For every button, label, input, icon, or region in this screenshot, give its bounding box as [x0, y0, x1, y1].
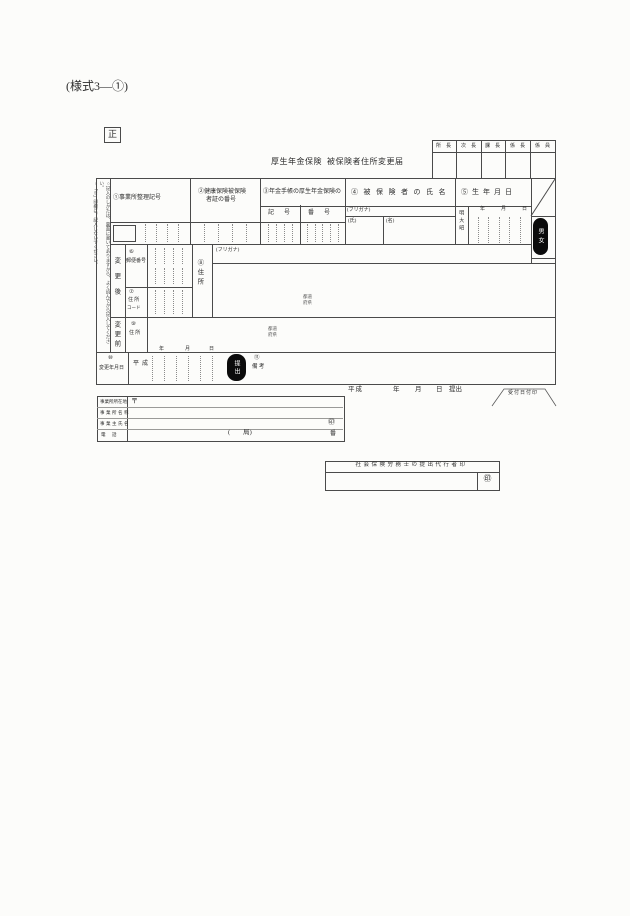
before-pref-note-2: 府県	[268, 333, 277, 338]
employer-phone-label: 電 話	[101, 433, 118, 438]
col-office-code: ①事業所整理記号	[113, 195, 161, 201]
copy-mark-box: 正	[104, 127, 121, 143]
line-art-overlay	[0, 0, 630, 916]
change-date-era: 平成	[133, 361, 151, 367]
after-address-furigana: (フリガナ)	[216, 248, 239, 253]
ocr-marker-submit: 提出	[227, 354, 246, 381]
submit-suffix: 提出	[449, 387, 462, 394]
submit-unit-month: 月	[415, 387, 422, 394]
birth-era-labels: 明大昭	[458, 210, 463, 244]
office-code-cell	[113, 225, 136, 242]
name-furigana-label: (フリガナ)	[347, 208, 370, 213]
col-birth-date: ⑤生年月日	[461, 189, 516, 196]
instruction-line-2: ○「※」印欄は、記入しないでください。	[92, 181, 98, 351]
addr-code-label-1: 住 所	[128, 298, 139, 303]
birth-unit-day: 日	[522, 207, 527, 212]
approval-col-kacho: 課長	[485, 144, 505, 149]
scanned-form-page: (様式3—①) 正 厚生年金保険 被保険者住所変更届 所長 次長 課長 係長 係…	[0, 0, 630, 916]
change-date-unit-year: 年	[159, 347, 164, 352]
approval-col-kakariin: 係員	[535, 144, 555, 149]
after-pref-note-2: 府県	[303, 301, 312, 306]
col-health-cert-2: 者証の番号	[206, 197, 236, 203]
phone-kyoku-hint: ( 局)	[228, 430, 252, 437]
approval-col-jicho: 次長	[461, 144, 481, 149]
phone-suffix: 番	[330, 431, 336, 437]
approval-col-kakaricho: 係長	[510, 144, 530, 149]
ocr-marker-gender: 男女	[533, 218, 548, 255]
submit-unit-day: 日	[436, 387, 443, 394]
col-pension-bango: 番 号	[308, 210, 332, 216]
employer-address-label: 事業所所在地	[100, 400, 127, 405]
postal-code-label: 郵便番号	[126, 259, 146, 264]
submit-era: 平成	[348, 387, 363, 394]
col-insured-name: ④被保険者の氏名	[351, 189, 451, 196]
employer-owner-label: 事業主氏名	[100, 422, 130, 427]
addr-code-label-2: コード	[127, 306, 141, 311]
name-last-label: (氏)	[348, 219, 356, 224]
col-pension-book: ③年金手帳の厚生年金保険の	[263, 189, 341, 195]
change-date-unit-month: 月	[185, 347, 190, 352]
postal-mark: 〒	[131, 398, 138, 405]
change-date-num: ⑩	[108, 356, 113, 362]
before-change-row-label: 変更前	[112, 321, 119, 351]
approval-col-shocho: 所長	[436, 144, 456, 149]
change-date-unit-day: 日	[209, 347, 214, 352]
before-pref-note-1: 都道	[268, 327, 277, 332]
after-address-label: ⑧住所	[195, 259, 202, 311]
owner-seal-mark: ㊞	[328, 419, 335, 426]
submit-unit-year: 年	[393, 387, 400, 394]
addr-code-num: ⑦	[129, 290, 134, 296]
col-health-cert-1: ②健康保険被保険	[198, 189, 246, 195]
sr-agent-title: 社会保険労務士の提出代行者印	[325, 463, 498, 469]
remarks-num: ⑪	[254, 356, 260, 362]
birth-unit-year: 年	[480, 207, 485, 212]
form-code: (様式3—①)	[66, 80, 128, 93]
change-date-label: 変更年月日	[99, 366, 124, 371]
form-title-system: 厚生年金保険	[271, 158, 322, 166]
after-change-row-label: 変更後	[112, 257, 119, 309]
name-first-label: (名)	[386, 219, 394, 224]
after-pref-note-1: 都道	[303, 295, 312, 300]
receipt-stamp-label: 受付日付印	[508, 391, 538, 396]
postal-code-num: ⑥	[129, 250, 134, 256]
birth-unit-month: 月	[501, 207, 506, 212]
form-title: 被保険者住所変更届	[327, 158, 404, 166]
before-address-num: ⑨	[131, 322, 136, 328]
sr-agent-seal-mark: ㊞	[477, 475, 498, 483]
col-pension-kigo: 記 号	[268, 210, 292, 216]
remarks-label: 備 考	[252, 365, 264, 371]
employer-name-label: 事業所名称	[100, 411, 130, 416]
before-address-label: 住 所	[129, 331, 140, 336]
copy-mark: 正	[108, 130, 117, 139]
